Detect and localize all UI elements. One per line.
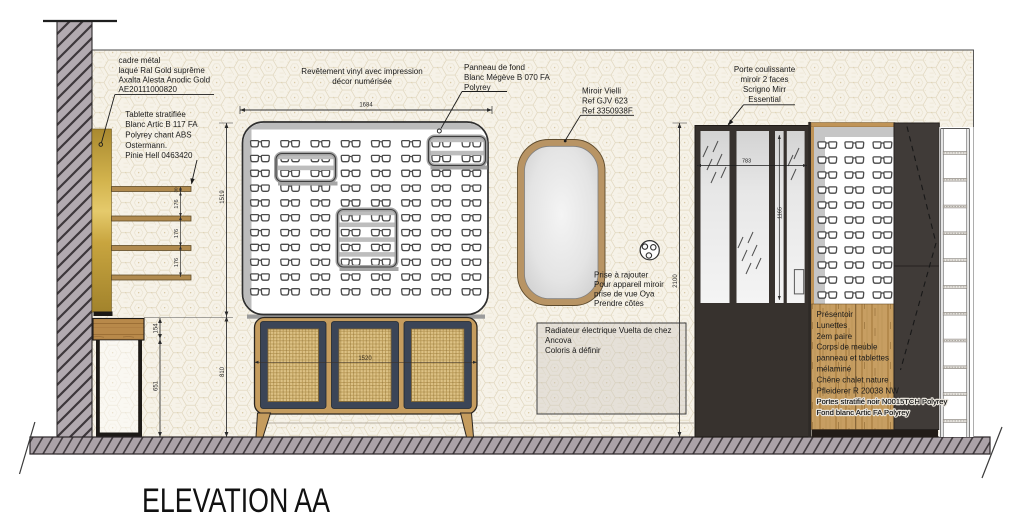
svg-text:Présentoir: Présentoir — [817, 310, 854, 319]
svg-text:Fond blanc Artic FA Polyrey: Fond blanc Artic FA Polyrey — [817, 408, 910, 417]
svg-text:651: 651 — [154, 380, 160, 391]
svg-text:1684: 1684 — [359, 103, 373, 109]
svg-text:30: 30 — [174, 187, 179, 193]
svg-text:Prise à rajouter: Prise à rajouter — [594, 271, 649, 280]
svg-text:Chêne chalet nature: Chêne chalet nature — [817, 375, 890, 384]
svg-text:2em paire: 2em paire — [817, 332, 853, 341]
svg-text:154: 154 — [154, 323, 160, 334]
svg-text:2100: 2100 — [673, 274, 679, 288]
svg-text:Polyrey chant ABS: Polyrey chant ABS — [125, 130, 191, 139]
svg-text:Blanc Artic B 117 FA: Blanc Artic B 117 FA — [125, 120, 198, 129]
svg-text:laqué Ral Gold suprême: laqué Ral Gold suprême — [119, 66, 206, 75]
svg-text:mélaminé: mélaminé — [817, 365, 852, 374]
svg-text:Coloris à définir: Coloris à définir — [545, 346, 601, 355]
svg-text:Corps de meuble: Corps de meuble — [817, 343, 878, 352]
svg-text:783: 783 — [742, 159, 751, 165]
svg-text:Portes stratifié noir N0015TCH: Portes stratifié noir N0015TCH Polyrey — [817, 397, 948, 406]
svg-text:Essential: Essential — [748, 95, 781, 104]
svg-text:AE20111000820: AE20111000820 — [119, 85, 178, 94]
svg-text:Miroir Vielli: Miroir Vielli — [582, 87, 621, 96]
svg-text:ELEVATION AA: ELEVATION AA — [142, 482, 330, 519]
svg-text:810: 810 — [220, 366, 226, 377]
svg-text:Lunettes: Lunettes — [817, 321, 848, 330]
svg-text:176: 176 — [174, 258, 180, 267]
svg-text:Scrigno Mirr: Scrigno Mirr — [743, 85, 786, 94]
svg-text:Radiateur électrique Vuelta de: Radiateur électrique Vuelta de chez — [545, 326, 671, 335]
svg-text:Ostermann.: Ostermann. — [125, 141, 167, 150]
svg-text:Pfleiderer R 20038 NW: Pfleiderer R 20038 NW — [817, 386, 900, 395]
svg-text:1165: 1165 — [778, 207, 784, 219]
svg-text:Axalta Alesta Anodic Gold: Axalta Alesta Anodic Gold — [119, 76, 211, 85]
svg-text:1519: 1519 — [220, 190, 226, 204]
svg-text:décor numérisée: décor numérisée — [332, 77, 392, 86]
svg-text:Prendre côtes: Prendre côtes — [594, 299, 644, 308]
svg-text:miroir 2 faces: miroir 2 faces — [740, 75, 788, 84]
svg-text:Pour appareil miroir: Pour appareil miroir — [594, 280, 664, 289]
svg-text:Ancova: Ancova — [545, 336, 572, 345]
svg-text:1520: 1520 — [358, 356, 372, 362]
svg-text:Ref GJV 623: Ref GJV 623 — [582, 97, 628, 106]
svg-text:Pinie Hell 0463420: Pinie Hell 0463420 — [125, 151, 193, 160]
svg-text:Tablette stratifiée: Tablette stratifiée — [125, 110, 186, 119]
svg-text:Ref 3350938F: Ref 3350938F — [582, 107, 633, 116]
svg-text:cadre métal: cadre métal — [119, 56, 161, 65]
svg-text:Blanc Mégève B 070 FA: Blanc Mégève B 070 FA — [464, 73, 550, 82]
svg-text:Porte coulissante: Porte coulissante — [734, 65, 796, 74]
svg-text:panneau et tablettes: panneau et tablettes — [817, 354, 890, 363]
svg-text:176: 176 — [174, 229, 180, 238]
svg-text:Revêtement vinyl avec impressi: Revêtement vinyl avec impression — [301, 67, 422, 76]
svg-text:Panneau de fond: Panneau de fond — [464, 63, 525, 72]
svg-text:Polyrey: Polyrey — [464, 83, 491, 92]
svg-text:prise de vue Oya: prise de vue Oya — [594, 290, 655, 299]
svg-text:176: 176 — [174, 199, 180, 208]
